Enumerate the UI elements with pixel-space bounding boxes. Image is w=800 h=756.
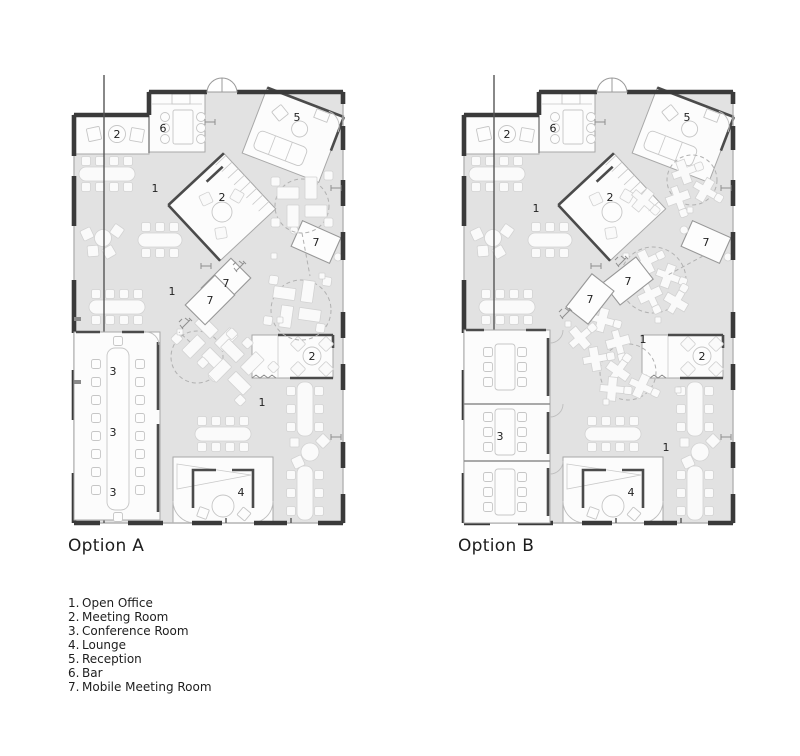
label-meeting-center: 2 (607, 191, 614, 204)
legend-item-reception: 5.Reception (68, 652, 212, 666)
label-meeting-right: 2 (699, 350, 706, 363)
legend-item-meeting-room: 2.Meeting Room (68, 610, 212, 624)
label-open-mid: 1 (169, 285, 176, 298)
label-open-upper: 1 (533, 202, 540, 215)
legend-item-bar: 6.Bar (68, 666, 212, 680)
legend-item-open-office: 1.Open Office (68, 596, 212, 610)
conference-room-a (74, 317, 160, 522)
label-conf-mid: 3 (110, 426, 117, 439)
label-lounge: 4 (238, 486, 245, 499)
label-reception: 5 (294, 111, 301, 124)
label-conf: 3 (497, 430, 504, 443)
label-open-lower: 1 (259, 396, 266, 409)
label-bar: 6 (160, 122, 167, 135)
label-open-upper: 1 (152, 182, 159, 195)
floor-plan-option-a: 2 6 5 1 2 7 7 7 1 2 3 3 3 1 4 (60, 70, 360, 526)
label-meeting-tl: 2 (114, 128, 121, 141)
label-meeting-center: 2 (219, 191, 226, 204)
conference-rooms-b (464, 330, 563, 523)
plan-title-option-a: Option A (68, 536, 144, 556)
label-conf-top: 3 (110, 365, 117, 378)
label-bar: 6 (550, 122, 557, 135)
label-meeting-right: 2 (309, 350, 316, 363)
label-mobile-b: 7 (207, 294, 214, 307)
legend-item-conference-room: 3.Conference Room (68, 624, 212, 638)
legend-item-lounge: 4.Lounge (68, 638, 212, 652)
label-meeting-tl: 2 (504, 128, 511, 141)
floor-plan-page: 2 6 5 1 2 7 7 7 1 2 3 3 3 1 4 (0, 0, 800, 756)
label-conf-bottom: 3 (110, 486, 117, 499)
label-reception: 5 (684, 111, 691, 124)
label-mobile-a: 7 (223, 277, 230, 290)
label-open-mid: 1 (640, 333, 647, 346)
floor-plan-option-b: 2 6 5 1 2 7 7 7 1 2 3 1 4 (450, 70, 750, 526)
label-mobile-a: 7 (625, 275, 632, 288)
legend: 1.Open Office 2.Meeting Room 3.Conferenc… (68, 596, 212, 694)
legend-item-mobile-meeting-room: 7.Mobile Meeting Room (68, 680, 212, 694)
plan-a-svg: 2 6 5 1 2 7 7 7 1 2 3 3 3 1 4 (60, 70, 360, 526)
label-lounge: 4 (628, 486, 635, 499)
label-mobile-right: 7 (703, 236, 710, 249)
label-open-lower: 1 (663, 441, 670, 454)
label-mobile-b: 7 (587, 293, 594, 306)
plan-b-svg: 2 6 5 1 2 7 7 7 1 2 3 1 4 (450, 70, 750, 526)
label-mobile-right: 7 (313, 236, 320, 249)
plan-title-option-b: Option B (458, 536, 534, 556)
